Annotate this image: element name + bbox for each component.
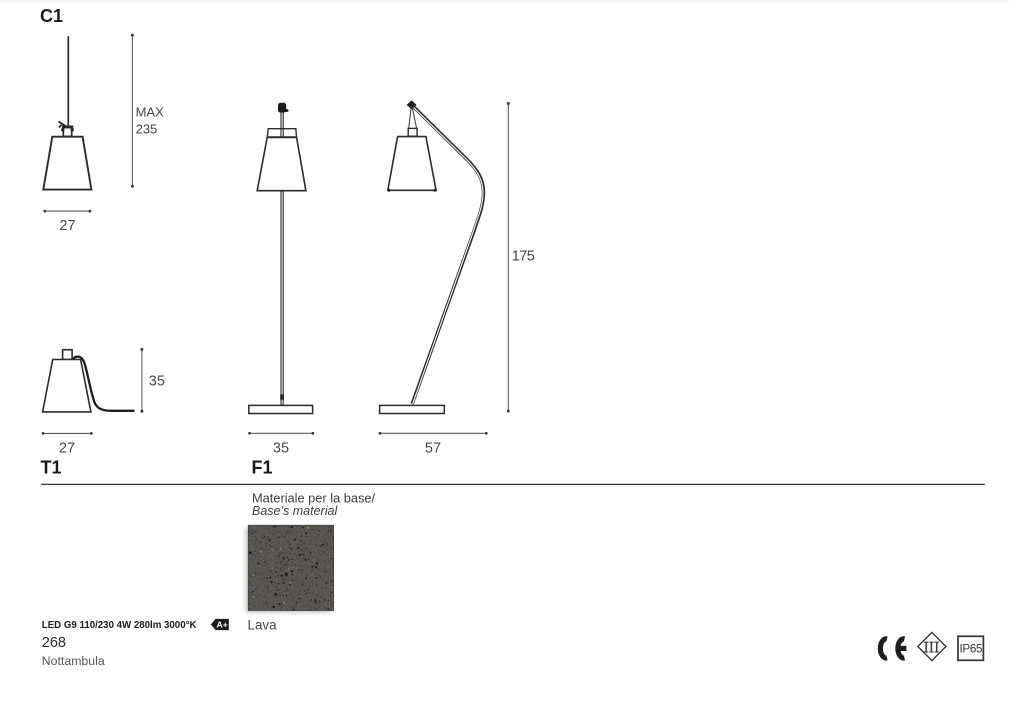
svg-text:Lava: Lava (248, 618, 278, 633)
svg-text:268: 268 (42, 635, 66, 651)
svg-text:27: 27 (59, 218, 75, 234)
svg-text:235: 235 (136, 122, 158, 137)
svg-text:F1: F1 (252, 458, 273, 478)
svg-text:Nottambula: Nottambula (42, 654, 105, 668)
svg-text:57: 57 (425, 441, 441, 457)
svg-text:LED G9 110/230 4W 280lm 3000°K: LED G9 110/230 4W 280lm 3000°K (42, 620, 197, 631)
svg-text:175: 175 (512, 249, 535, 265)
svg-text:A+: A+ (217, 620, 228, 630)
svg-text:35: 35 (149, 374, 165, 390)
svg-text:MAX: MAX (136, 105, 165, 120)
svg-text:T1: T1 (41, 458, 62, 478)
svg-text:C1: C1 (40, 6, 63, 26)
svg-text:35: 35 (273, 441, 289, 457)
svg-text:27: 27 (59, 441, 75, 457)
svg-text:IP65: IP65 (959, 642, 982, 655)
svg-text:Base’s material: Base’s material (252, 504, 338, 518)
